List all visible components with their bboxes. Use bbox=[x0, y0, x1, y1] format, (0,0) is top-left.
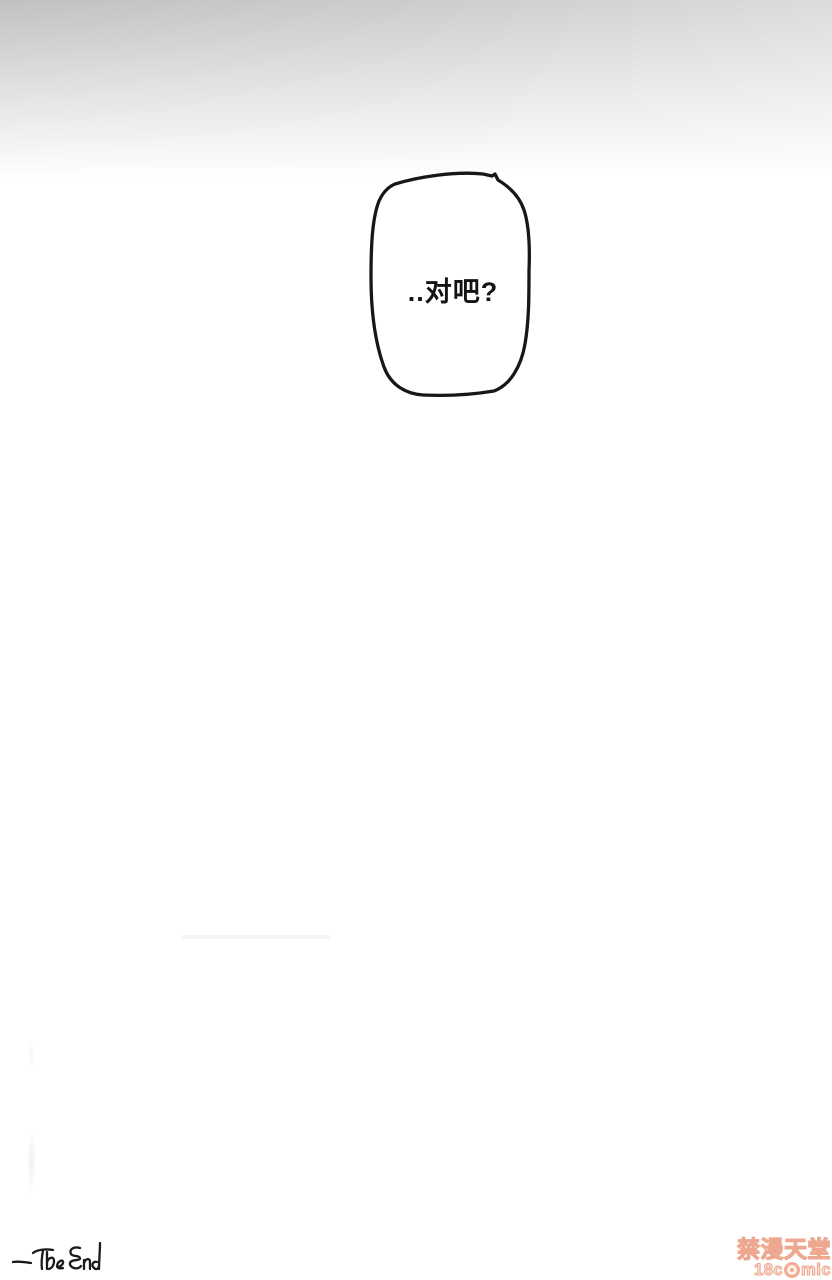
watermark-site-id: 18cmic bbox=[737, 1262, 831, 1279]
watermark-id-prefix: 18c bbox=[754, 1262, 783, 1279]
watermark-site-name: 禁漫天堂 bbox=[737, 1238, 831, 1261]
speech-bubble-text: ..对吧? bbox=[375, 176, 531, 396]
faint-edge-smudge-small bbox=[28, 1040, 35, 1070]
watermark: 禁漫天堂 18cmic bbox=[737, 1238, 831, 1279]
watermark-o-logo-icon bbox=[784, 1262, 800, 1278]
the-end-note: -The End bbox=[8, 1236, 123, 1280]
faint-edge-smudge bbox=[27, 1128, 36, 1194]
faint-scan-line bbox=[181, 935, 331, 939]
comic-page: ..对吧? -The End bbox=[0, 0, 832, 1280]
the-end-handwriting bbox=[8, 1236, 123, 1280]
watermark-id-suffix: mic bbox=[801, 1262, 831, 1279]
